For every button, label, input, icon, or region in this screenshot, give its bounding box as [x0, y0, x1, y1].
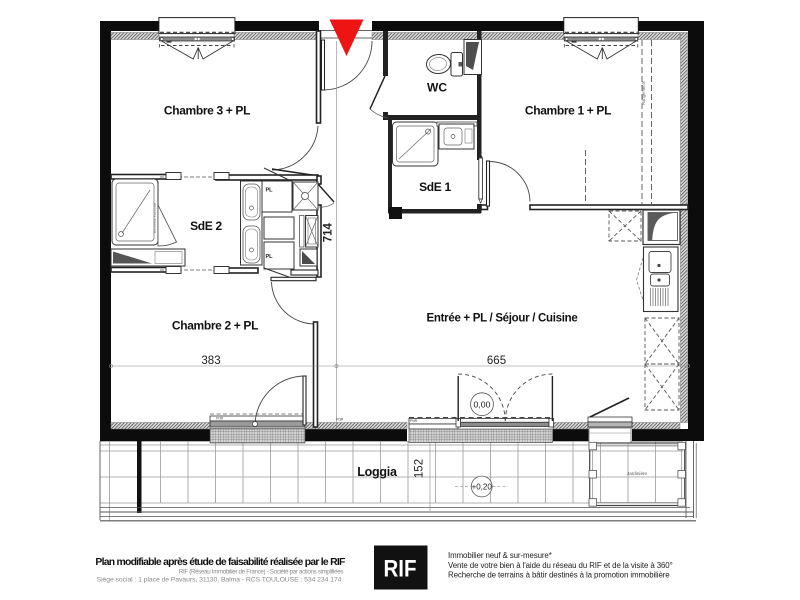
svg-text:Loggia: Loggia [357, 465, 398, 479]
svg-text:WC: WC [427, 81, 447, 95]
svg-text:RIF (Réseau Immobilier de Fran: RIF (Réseau Immobilier de France) - Soci… [179, 569, 343, 576]
svg-text:+0,20: +0,20 [472, 482, 493, 491]
svg-text:PL: PL [265, 188, 273, 194]
svg-text:152: 152 [414, 459, 426, 478]
svg-text:714: 714 [322, 223, 334, 243]
svg-text:Vente de votre bien à l'aide d: Vente de votre bien à l'aide du réseau d… [448, 561, 673, 570]
svg-text:PdR: PdR [336, 418, 344, 422]
svg-text:PdR: PdR [216, 417, 224, 421]
svg-text:0,00: 0,00 [474, 399, 491, 409]
svg-text:SdE 1: SdE 1 [419, 180, 451, 194]
svg-text:383: 383 [201, 355, 220, 367]
svg-text:PdR: PdR [410, 419, 418, 423]
svg-text:PL: PL [265, 254, 273, 260]
svg-text:Plan modifiable après étude de: Plan modifiable après étude de faisabili… [95, 557, 345, 568]
svg-text:Chambre 3 + PL: Chambre 3 + PL [164, 104, 250, 118]
svg-text:Entrée + PL / Séjour / Cuisine: Entrée + PL / Séjour / Cuisine [427, 313, 578, 325]
svg-text:Chambre 1 + PL: Chambre 1 + PL [525, 104, 611, 118]
svg-text:SdE 2: SdE 2 [190, 219, 222, 233]
svg-text:Immobilier neuf & sur-mesure*: Immobilier neuf & sur-mesure* [448, 551, 552, 560]
svg-text:Jardinière: Jardinière [627, 471, 648, 476]
svg-text:Rangements: Rangements [641, 81, 646, 105]
svg-text:Recherche de terrains à bâtir: Recherche de terrains à bâtir destinés à… [448, 571, 670, 580]
svg-text:665: 665 [487, 355, 506, 367]
svg-text:Chambre 2 + PL: Chambre 2 + PL [172, 319, 258, 333]
svg-text:Siège social : 1 place de Pava: Siège social : 1 place de Pavaurs, 31130… [97, 577, 342, 584]
svg-text:RIF: RIF [384, 556, 417, 583]
svg-text:Receveur extra plat: Receveur extra plat [153, 203, 157, 233]
